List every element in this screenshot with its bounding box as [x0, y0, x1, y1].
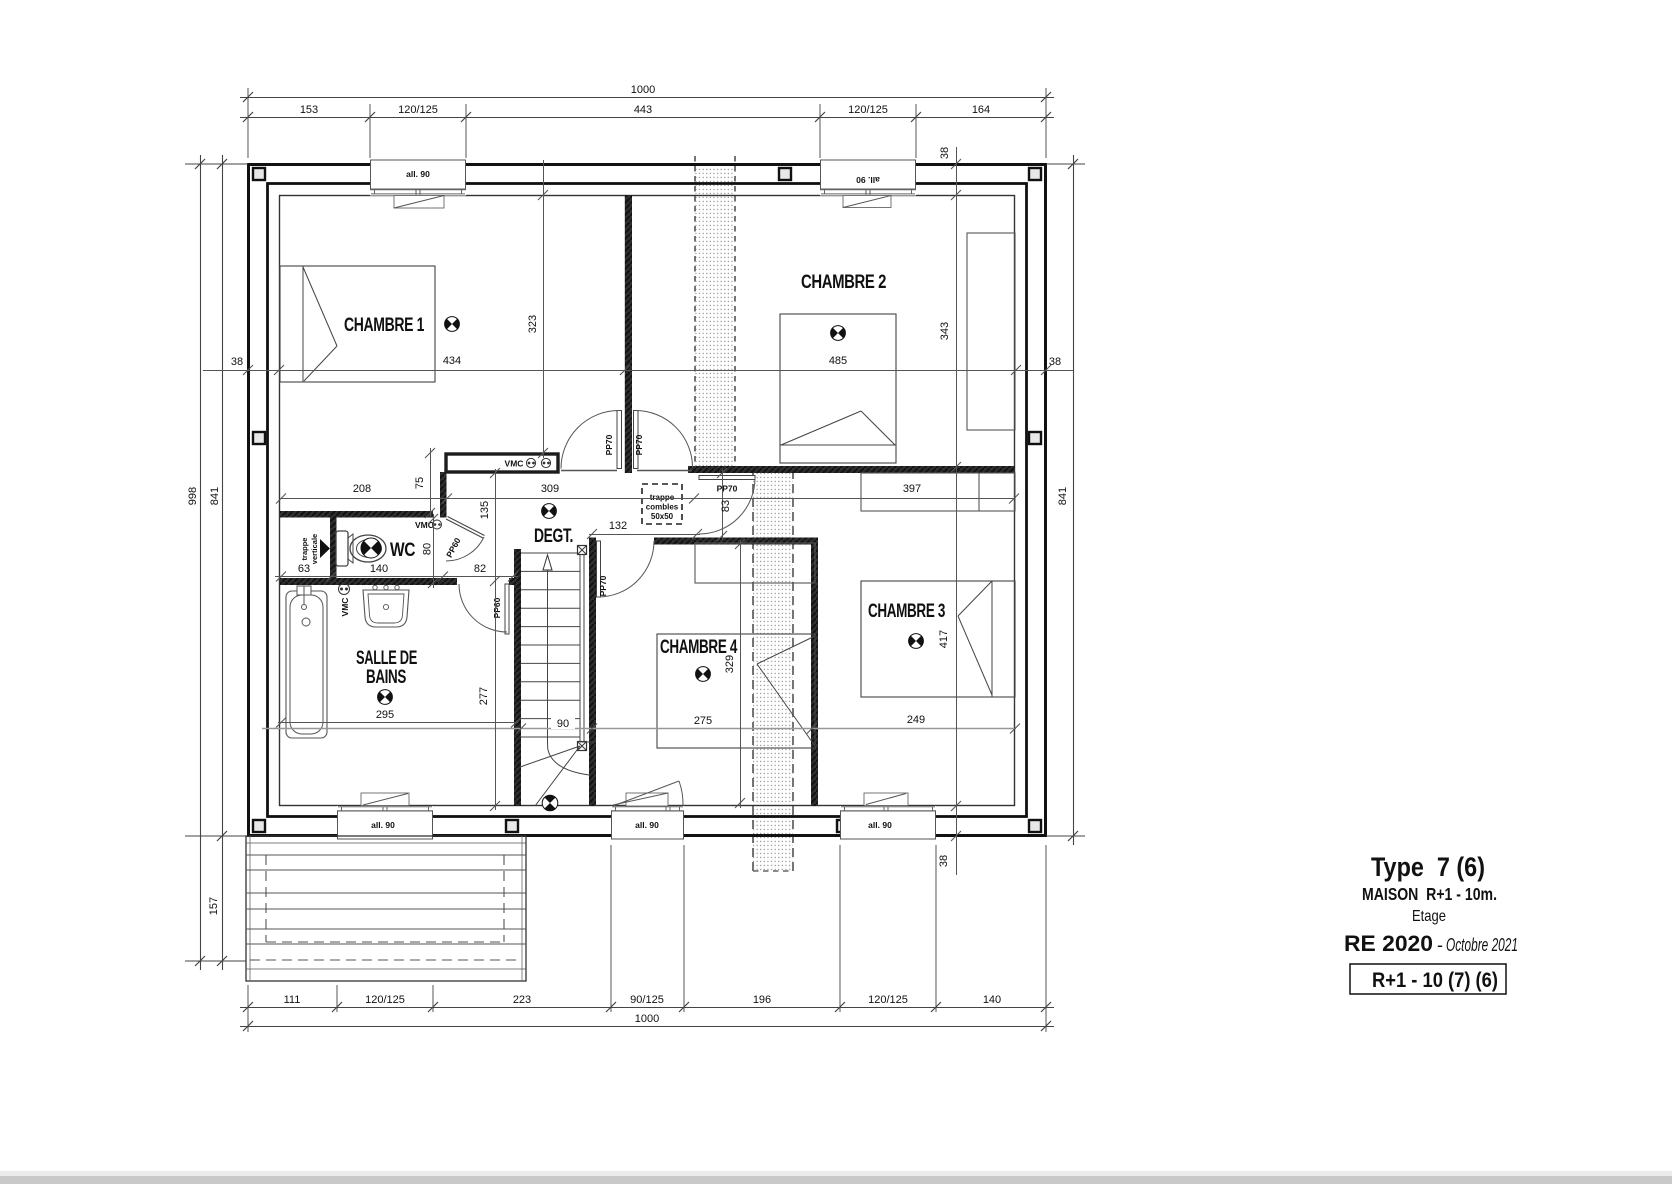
svg-text:120/125: 120/125 — [365, 994, 405, 1006]
svg-text:38: 38 — [1049, 356, 1061, 368]
svg-text:998: 998 — [187, 487, 199, 505]
svg-text:249: 249 — [907, 714, 925, 726]
svg-text:841: 841 — [209, 487, 221, 505]
svg-text:BAINS: BAINS — [366, 667, 406, 688]
svg-text:PP70: PP70 — [634, 434, 644, 455]
svg-text:trappe: trappe — [300, 538, 309, 561]
svg-text:PP70: PP70 — [598, 575, 608, 596]
svg-text:CHAMBRE 2: CHAMBRE 2 — [801, 272, 886, 293]
svg-text:120/125: 120/125 — [398, 104, 438, 116]
svg-text:50x50: 50x50 — [651, 512, 674, 521]
svg-text:Octobre 2021: Octobre 2021 — [1446, 934, 1518, 955]
svg-text:verticale: verticale — [310, 534, 319, 564]
svg-text:90: 90 — [557, 718, 569, 730]
svg-text:all. 90: all. 90 — [856, 175, 880, 185]
svg-text:PP60: PP60 — [492, 597, 502, 618]
svg-text:443: 443 — [634, 104, 652, 116]
svg-text:combles: combles — [646, 503, 679, 512]
svg-text:all. 90: all. 90 — [371, 820, 395, 830]
svg-text:434: 434 — [443, 355, 461, 367]
svg-text:90/125: 90/125 — [630, 994, 664, 1006]
svg-text:196: 196 — [753, 994, 771, 1006]
svg-text:417: 417 — [938, 630, 950, 648]
svg-text:MAISON R+1 - 10m.: MAISON R+1 - 10m. — [1362, 884, 1497, 904]
svg-text:275: 275 — [694, 715, 712, 727]
svg-text:all. 90: all. 90 — [635, 820, 659, 830]
svg-text:485: 485 — [829, 355, 847, 367]
svg-text:309: 309 — [541, 483, 559, 495]
svg-text:1000: 1000 — [631, 84, 655, 96]
svg-text:153: 153 — [300, 104, 318, 116]
svg-text:38: 38 — [231, 356, 243, 368]
svg-text:323: 323 — [527, 315, 539, 333]
svg-text:-: - — [1437, 935, 1443, 955]
svg-text:329: 329 — [724, 655, 736, 673]
svg-text:Type 7 (6): Type 7 (6) — [1371, 852, 1485, 882]
svg-text:PP70: PP70 — [604, 434, 614, 455]
svg-text:WC: WC — [390, 540, 416, 561]
svg-text:295: 295 — [376, 709, 394, 721]
svg-text:CHAMBRE 1: CHAMBRE 1 — [344, 315, 425, 336]
svg-text:841: 841 — [1057, 487, 1069, 505]
svg-text:120/125: 120/125 — [868, 994, 908, 1006]
svg-text:38: 38 — [939, 147, 951, 159]
svg-text:trappe: trappe — [650, 493, 675, 502]
svg-text:397: 397 — [903, 483, 921, 495]
svg-text:VMC: VMC — [505, 459, 524, 469]
svg-text:PP70: PP70 — [717, 484, 738, 494]
svg-text:277: 277 — [478, 687, 490, 705]
svg-text:343: 343 — [939, 322, 951, 340]
svg-text:120/125: 120/125 — [848, 104, 888, 116]
svg-text:all. 90: all. 90 — [868, 820, 892, 830]
svg-text:83: 83 — [720, 500, 732, 512]
svg-text:38: 38 — [938, 855, 950, 867]
svg-text:VMC: VMC — [340, 598, 350, 617]
svg-text:82: 82 — [474, 563, 486, 575]
svg-text:Etage: Etage — [1412, 908, 1446, 925]
svg-text:164: 164 — [972, 104, 990, 116]
svg-text:80: 80 — [422, 543, 434, 555]
svg-text:132: 132 — [609, 520, 627, 532]
svg-text:135: 135 — [479, 501, 491, 519]
svg-text:208: 208 — [353, 483, 371, 495]
svg-text:CHAMBRE 3: CHAMBRE 3 — [868, 601, 945, 622]
svg-text:all. 90: all. 90 — [406, 169, 430, 179]
svg-text:1000: 1000 — [635, 1013, 659, 1025]
svg-text:63: 63 — [298, 563, 310, 575]
svg-text:RE 2020: RE 2020 — [1344, 931, 1433, 956]
svg-text:223: 223 — [513, 994, 531, 1006]
svg-text:140: 140 — [983, 994, 1001, 1006]
svg-text:140: 140 — [370, 563, 388, 575]
svg-text:R+1 - 10 (7) (6): R+1 - 10 (7) (6) — [1372, 969, 1498, 992]
svg-text:111: 111 — [284, 994, 301, 1006]
svg-text:75: 75 — [414, 477, 426, 489]
svg-text:157: 157 — [208, 897, 220, 915]
svg-text:SALLE DE: SALLE DE — [356, 648, 417, 669]
svg-text:DEGT.: DEGT. — [534, 526, 573, 547]
